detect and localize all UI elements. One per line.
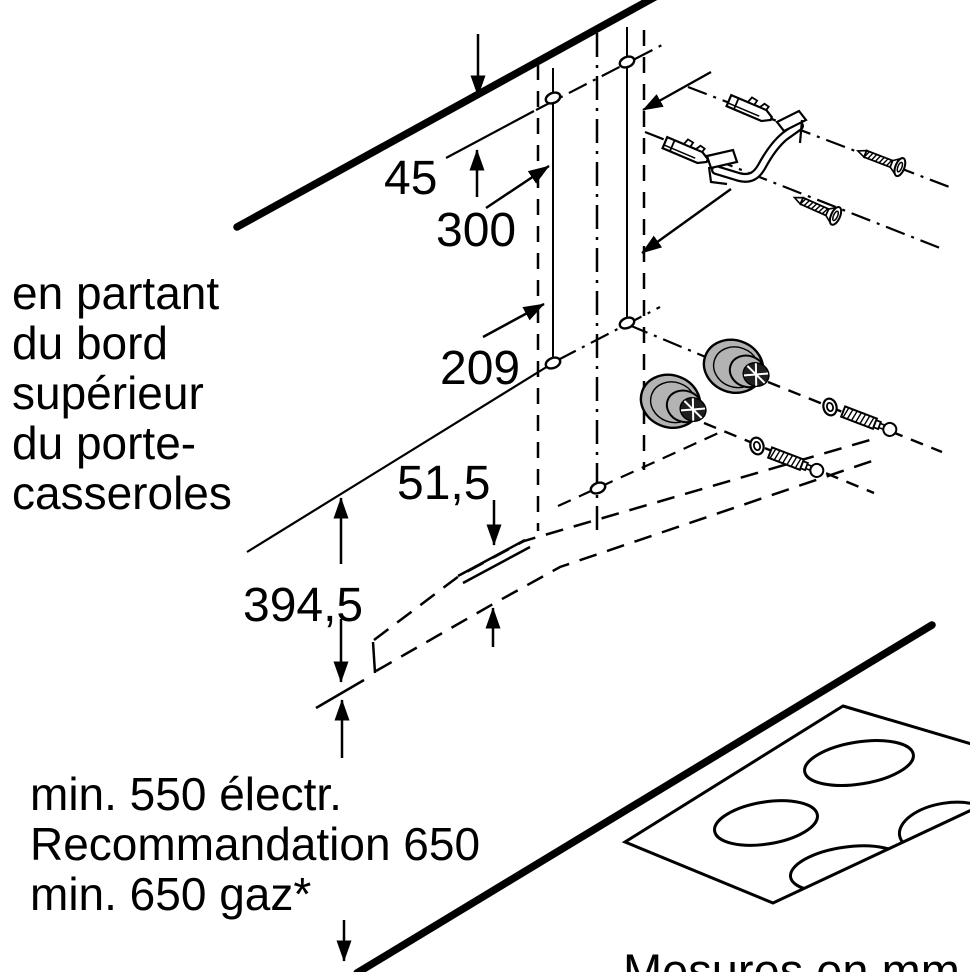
- dimension-300: 300: [436, 204, 516, 257]
- units-note: Mesures en mm: [623, 944, 960, 972]
- note-line: du bord: [12, 317, 168, 369]
- dimension-394-5: 394,5: [243, 579, 363, 632]
- note-line: min. 550 électr.: [30, 768, 342, 820]
- note-line: du porte-: [12, 417, 196, 469]
- pan-rest-note: en partant du bord supérieur du porte- c…: [12, 267, 232, 519]
- note-line: min. 650 gaz*: [30, 868, 311, 920]
- note-line: supérieur: [12, 367, 204, 419]
- installation-diagram: 45 300 209 51,5 394,5 en partant du bord…: [0, 0, 970, 972]
- dimension-209: 209: [440, 342, 520, 395]
- dimension-45: 45: [384, 152, 437, 205]
- note-line: Recommandation 650: [30, 818, 480, 870]
- dimension-51-5: 51,5: [397, 457, 490, 510]
- note-line: casseroles: [12, 467, 232, 519]
- note-line: en partant: [12, 267, 219, 319]
